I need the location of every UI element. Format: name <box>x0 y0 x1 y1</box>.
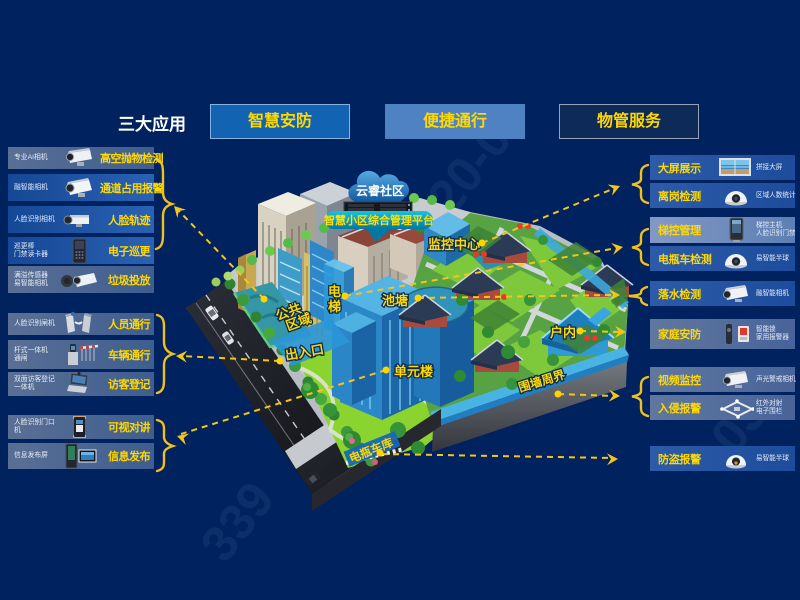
svg-text:户内: 户内 <box>550 325 576 340</box>
svg-text:智慧小区综合管理平台: 智慧小区综合管理平台 <box>324 213 434 227</box>
svg-text:梯: 梯 <box>328 299 341 314</box>
svg-text:池塘: 池塘 <box>382 293 408 308</box>
svg-text:电: 电 <box>328 284 341 299</box>
svg-text:云睿社区: 云睿社区 <box>356 183 404 198</box>
svg-text:监控中心: 监控中心 <box>428 237 480 252</box>
svg-text:单元楼: 单元楼 <box>394 364 433 379</box>
svg-text:339: 339 <box>190 472 285 572</box>
